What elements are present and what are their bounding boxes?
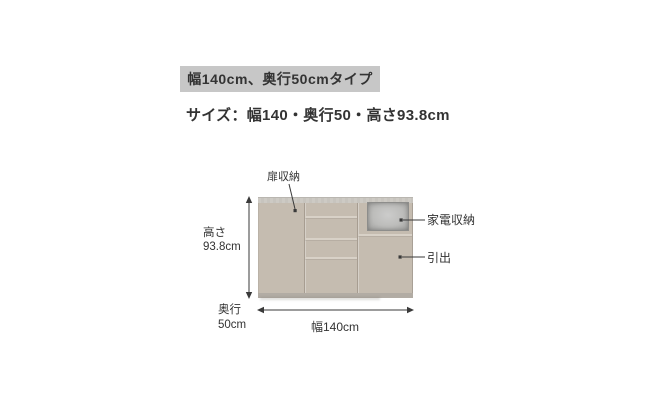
cabinet-illustration bbox=[258, 197, 413, 298]
appliance-opening bbox=[367, 202, 409, 231]
depth-dimension-label: 奥行 50cm bbox=[218, 303, 246, 332]
floor-shadow bbox=[260, 297, 380, 300]
drawer-divider bbox=[305, 238, 357, 240]
middle-right-divider bbox=[357, 203, 358, 293]
drawer-divider bbox=[358, 234, 412, 236]
drawer-callout-label: 引出 bbox=[427, 251, 451, 265]
drawer-divider bbox=[305, 257, 357, 259]
size-summary-text: サイズ：幅140・奥行50・高さ93.8cm bbox=[186, 104, 450, 125]
appliance-storage-label: 家電収納 bbox=[427, 213, 475, 227]
height-dimension-label: 高さ 93.8cm bbox=[203, 227, 241, 254]
depth-label: 奥行 bbox=[218, 303, 246, 318]
height-dimension-arrow bbox=[246, 196, 252, 299]
drawer-divider bbox=[305, 216, 357, 218]
height-label: 高さ bbox=[203, 227, 241, 241]
width-dimension-label: 幅140cm bbox=[311, 320, 359, 334]
width-dimension-arrow bbox=[257, 307, 414, 313]
height-value: 93.8cm bbox=[203, 241, 241, 255]
door-storage-label: 扉収納 bbox=[267, 170, 300, 184]
type-badge: 幅140cm、奥行50cmタイプ bbox=[180, 66, 380, 92]
product-dimension-figure: 幅140cm、奥行50cmタイプ サイズ：幅140・奥行50・高さ93.8cm bbox=[0, 0, 664, 410]
depth-value: 50cm bbox=[218, 318, 246, 333]
